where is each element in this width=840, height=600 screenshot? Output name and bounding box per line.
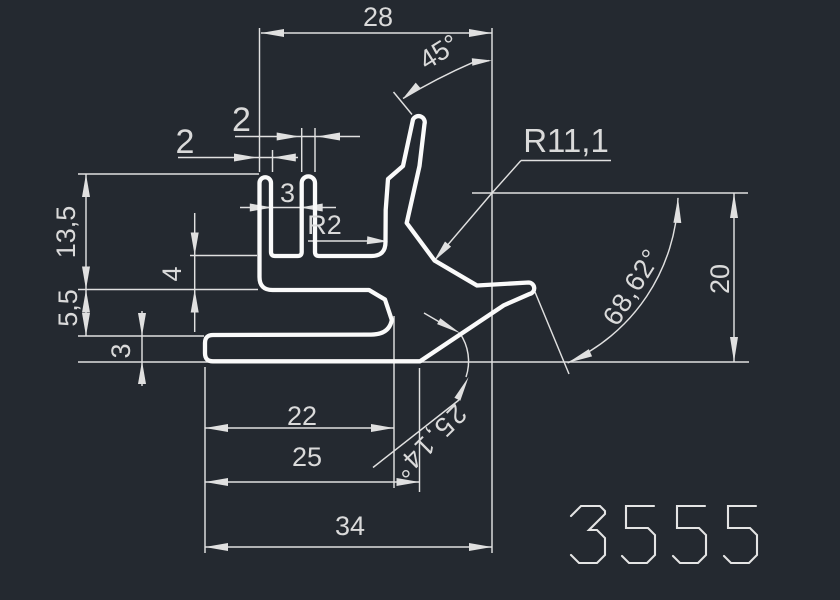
svg-text:28: 28: [363, 2, 393, 32]
svg-text:13,5: 13,5: [51, 206, 81, 259]
svg-text:R11,1: R11,1: [523, 122, 609, 159]
svg-text:2: 2: [176, 123, 195, 161]
svg-text:20: 20: [705, 264, 735, 294]
svg-text:4: 4: [157, 266, 187, 281]
svg-text:25: 25: [292, 442, 322, 472]
svg-text:R2: R2: [307, 210, 342, 240]
svg-text:34: 34: [335, 511, 365, 541]
svg-text:5,5: 5,5: [53, 289, 83, 327]
svg-text:3: 3: [106, 343, 136, 358]
svg-text:3: 3: [280, 178, 295, 208]
svg-text:2: 2: [232, 101, 251, 139]
svg-text:22: 22: [287, 401, 317, 431]
